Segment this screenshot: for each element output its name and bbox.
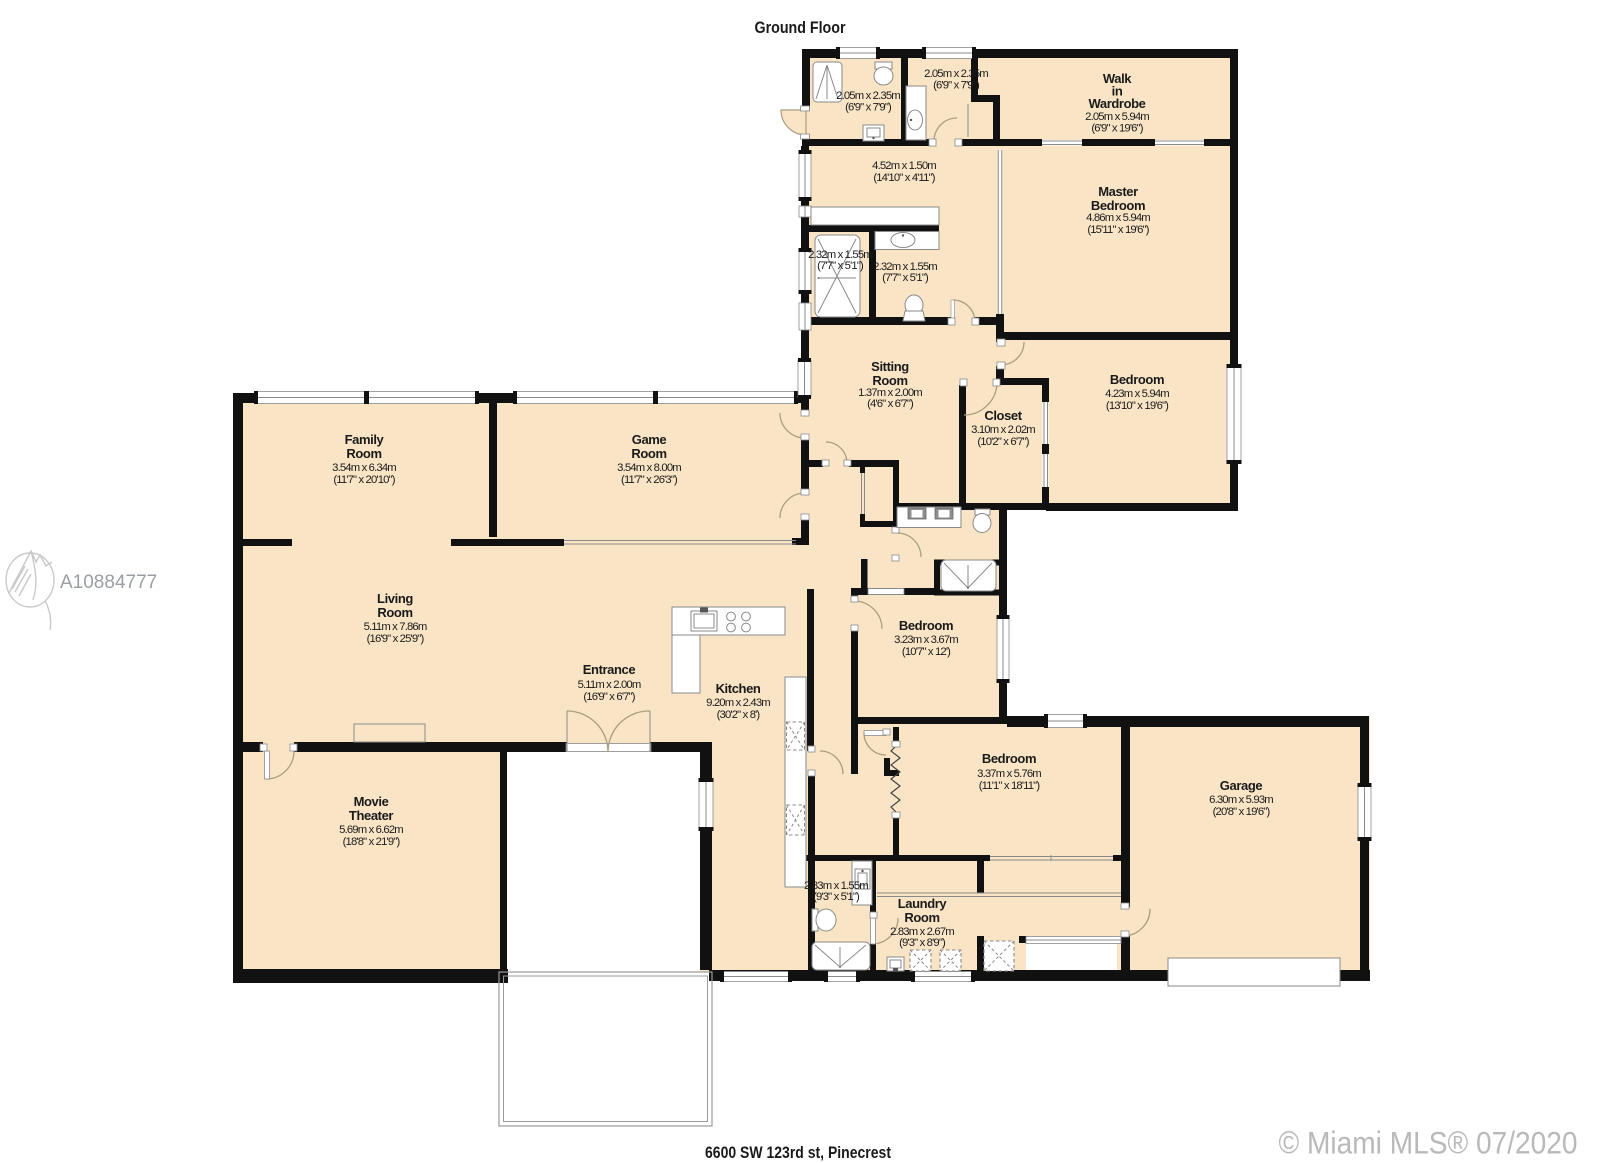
svg-text:3.10m x 2.02m: 3.10m x 2.02m: [971, 424, 1035, 436]
svg-text:(7'7" x 5'1"): (7'7" x 5'1"): [817, 260, 864, 272]
svg-text:(11'7" x 20'10"): (11'7" x 20'10"): [333, 474, 395, 486]
svg-text:5.69m x 6.62m: 5.69m x 6.62m: [339, 824, 403, 836]
svg-text:3.23m x 3.67m: 3.23m x 3.67m: [894, 634, 958, 646]
svg-text:Room: Room: [377, 605, 412, 620]
svg-text:(10'7" x 12'): (10'7" x 12'): [902, 646, 951, 658]
svg-text:(4'6" x 6'7"): (4'6" x 6'7"): [867, 398, 914, 410]
svg-text:5.11m x 7.86m: 5.11m x 7.86m: [364, 621, 427, 633]
svg-text:(30'2" x 8'): (30'2" x 8'): [717, 709, 761, 721]
svg-text:6.30m x 5.93m: 6.30m x 5.93m: [1209, 794, 1273, 806]
svg-text:Theater: Theater: [349, 808, 394, 823]
svg-text:4.23m x 5.94m: 4.23m x 5.94m: [1105, 388, 1169, 400]
svg-text:5.11m x 2.00m: 5.11m x 2.00m: [578, 679, 641, 691]
svg-text:Garage: Garage: [1220, 778, 1263, 793]
svg-text:Bedroom: Bedroom: [982, 751, 1036, 766]
svg-text:6600 SW 123rd st, Pinecrest: 6600 SW 123rd st, Pinecrest: [705, 1143, 891, 1162]
svg-text:3.54m x 6.34m: 3.54m x 6.34m: [332, 462, 396, 474]
svg-text:3.37m x 5.76m: 3.37m x 5.76m: [977, 768, 1041, 780]
svg-text:© Miami MLS® 07/2020: © Miami MLS® 07/2020: [1279, 1125, 1578, 1161]
svg-text:Bedroom: Bedroom: [1110, 372, 1164, 387]
svg-text:(9'3" x 8'9"): (9'3" x 8'9"): [899, 937, 946, 949]
svg-text:9.20m x 2.43m: 9.20m x 2.43m: [706, 697, 770, 709]
svg-text:(7'7" x 5'1"): (7'7" x 5'1"): [882, 272, 929, 284]
svg-text:Master: Master: [1098, 184, 1138, 199]
svg-text:(16'9" x 6'7"): (16'9" x 6'7"): [583, 691, 635, 703]
svg-text:(13'10" x 19'6"): (13'10" x 19'6"): [1106, 400, 1169, 412]
svg-text:Room: Room: [904, 910, 939, 925]
svg-text:4.86m x 5.94m: 4.86m x 5.94m: [1086, 212, 1150, 224]
svg-text:(11'7" x 26'3"): (11'7" x 26'3"): [621, 474, 678, 486]
svg-text:2.05m x 2.35m: 2.05m x 2.35m: [924, 68, 988, 80]
svg-text:(6'9" x 7'9"): (6'9" x 7'9"): [845, 102, 892, 114]
svg-text:Bedroom: Bedroom: [1091, 198, 1145, 213]
svg-text:2.05m x 5.94m: 2.05m x 5.94m: [1085, 111, 1149, 123]
svg-text:Room: Room: [631, 446, 666, 461]
svg-text:Wardrobe: Wardrobe: [1089, 96, 1146, 111]
svg-text:(6'9" x 19'6"): (6'9" x 19'6"): [1091, 123, 1143, 135]
svg-text:(14'10" x 4'11"): (14'10" x 4'11"): [873, 172, 935, 184]
svg-text:Movie: Movie: [354, 794, 389, 809]
svg-text:(20'8" x 19'6"): (20'8" x 19'6"): [1213, 806, 1271, 818]
svg-text:(6'9" x 7'9"): (6'9" x 7'9"): [933, 80, 980, 92]
svg-text:(11'1" x 18'11"): (11'1" x 18'11"): [979, 780, 1041, 792]
svg-text:Family: Family: [345, 432, 385, 447]
svg-text:Entrance: Entrance: [583, 662, 636, 677]
svg-text:(9'3" x 5'1"): (9'3" x 5'1"): [813, 891, 860, 903]
svg-text:(10'2" x 6'7"): (10'2" x 6'7"): [977, 436, 1029, 448]
svg-text:3.54m x 8.00m: 3.54m x 8.00m: [617, 462, 681, 474]
svg-text:Closet: Closet: [984, 408, 1022, 423]
svg-text:Room: Room: [872, 373, 907, 388]
svg-text:Bedroom: Bedroom: [899, 618, 953, 633]
svg-text:Ground Floor: Ground Floor: [755, 19, 846, 37]
svg-text:A10884777: A10884777: [60, 572, 157, 593]
svg-text:Sitting: Sitting: [871, 359, 909, 374]
svg-text:4.52m x 1.50m: 4.52m x 1.50m: [872, 160, 936, 172]
svg-text:(16'9" x 25'9"): (16'9" x 25'9"): [367, 633, 425, 645]
svg-text:2.05m x 2.35m: 2.05m x 2.35m: [836, 90, 900, 102]
svg-text:Game: Game: [632, 432, 667, 447]
svg-text:Room: Room: [346, 446, 381, 461]
svg-text:(18'8" x 21'9"): (18'8" x 21'9"): [343, 836, 401, 848]
svg-text:Laundry: Laundry: [898, 896, 948, 911]
svg-text:Living: Living: [377, 591, 413, 606]
svg-text:(15'11" x 19'6"): (15'11" x 19'6"): [1087, 224, 1149, 236]
svg-text:Kitchen: Kitchen: [716, 681, 761, 696]
